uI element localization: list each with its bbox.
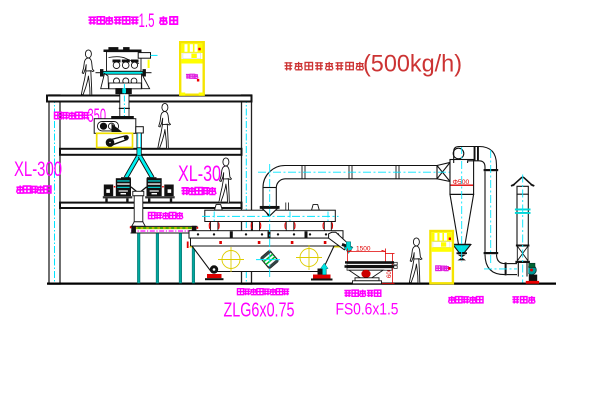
svg-text:(500kg/h): (500kg/h): [363, 51, 462, 78]
svg-text:XL-300: XL-300: [14, 158, 62, 181]
svg-text:Φ500: Φ500: [453, 179, 470, 186]
svg-text:FS0.6x1.5: FS0.6x1.5: [336, 301, 399, 319]
svg-text:1500: 1500: [356, 246, 371, 253]
svg-text:1.5: 1.5: [139, 11, 155, 32]
svg-text:ZLG6x0.75: ZLG6x0.75: [224, 298, 295, 321]
